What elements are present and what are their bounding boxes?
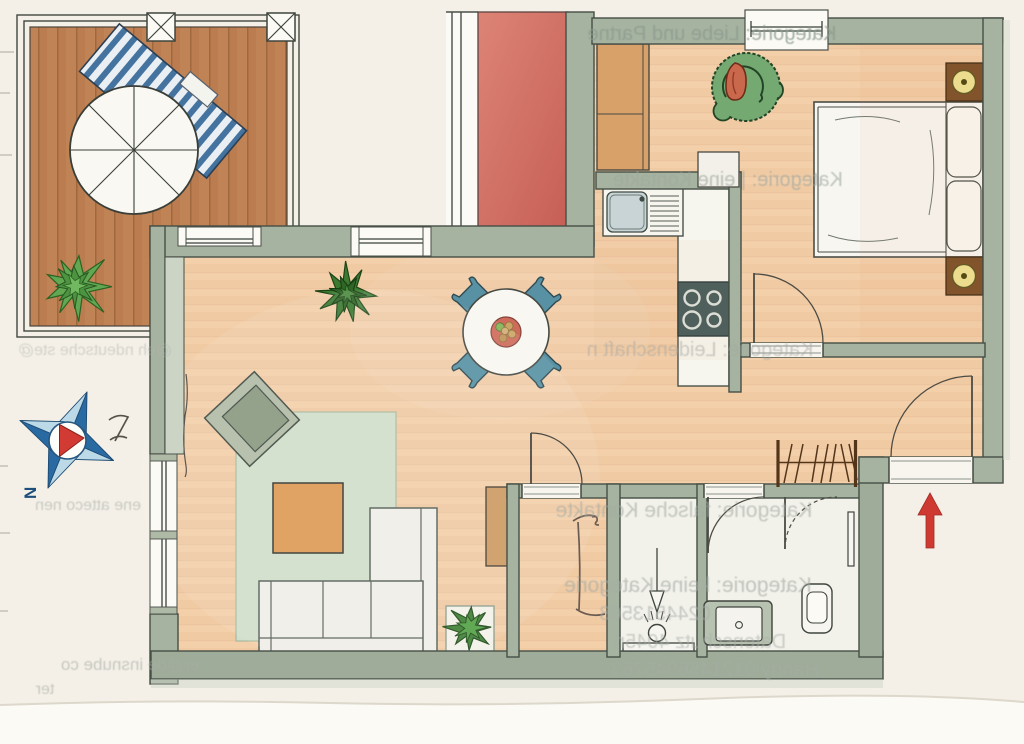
svg-text:Kategorie: Liebe und Partne: Kategorie: Liebe und Partne — [587, 23, 836, 45]
svg-text:Kategorie: falsche Kontakte: Kategorie: falsche Kontakte — [556, 499, 813, 522]
svg-text:@eh ndeutsche ste@: @eh ndeutsche ste@ — [18, 342, 172, 359]
svg-text:Handy 0121456945763: Handy 0121456945763 — [611, 659, 819, 681]
svg-text:Datenschutz 4045n: Datenschutz 4045n — [614, 631, 786, 653]
svg-text:ene atteco nen: ene atteco nen — [35, 497, 141, 514]
svg-text:ter: ter — [35, 681, 54, 698]
svg-text:0244513568: 0244513568 — [599, 603, 710, 625]
svg-text:Kategorie: Leidenschaft n: Kategorie: Leidenschaft n — [587, 339, 814, 361]
svg-text:Kategorie: | eine Kontakte: Kategorie: | eine Kontakte — [613, 169, 843, 191]
svg-text:er@de insnube co: er@de insnube co — [61, 655, 199, 674]
svg-text:Kategorie: keine Kategorie: Kategorie: keine Kategorie — [564, 574, 812, 597]
